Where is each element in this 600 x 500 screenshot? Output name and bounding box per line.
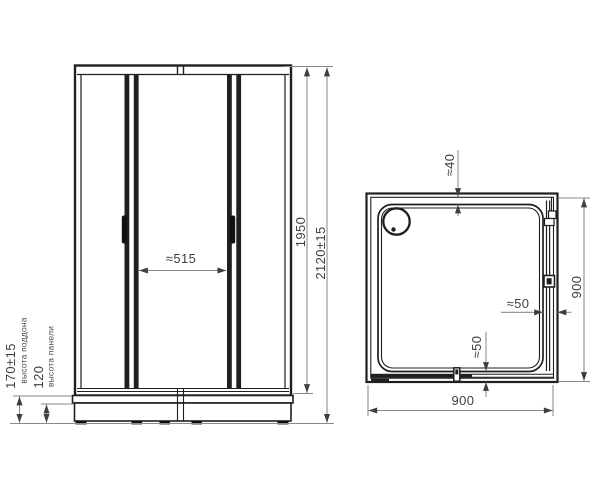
- cabin-frame: [75, 66, 291, 396]
- top-wall-gap-label: ≈40: [443, 148, 457, 182]
- bottom-track-gap-label: ≈50: [470, 330, 484, 364]
- left-door-handle: [122, 216, 127, 244]
- cabin-height-label: 1950: [294, 212, 308, 252]
- right-track-bracket: [545, 219, 555, 226]
- panel-height-caption: высота панели: [45, 321, 56, 391]
- tray-height-label: 170±15: [4, 342, 18, 390]
- front-panel: [75, 403, 292, 421]
- tray-height-caption: высота поддона: [18, 313, 29, 387]
- width-label: 900: [443, 394, 483, 408]
- drain-dot: [391, 227, 395, 231]
- bottom-track-endcap: [371, 379, 389, 382]
- top-view: [367, 194, 558, 383]
- right-track-bracket-top: [549, 211, 557, 219]
- tray-rim: [73, 396, 294, 404]
- front-view: [73, 66, 294, 425]
- total-height-label: 2120±15: [314, 223, 328, 283]
- panel-height-label: 120: [32, 362, 46, 392]
- door-opening-width-label: ≈515: [156, 252, 206, 266]
- right-door-handle: [230, 216, 235, 244]
- depth-label: 900: [570, 270, 584, 304]
- right-track-gap-label: ≈50: [498, 297, 538, 311]
- drain-circle: [383, 208, 409, 234]
- shower-cabin-dimension-drawing: ≈515 1950 2120±15 170±15 высота поддона …: [0, 0, 600, 500]
